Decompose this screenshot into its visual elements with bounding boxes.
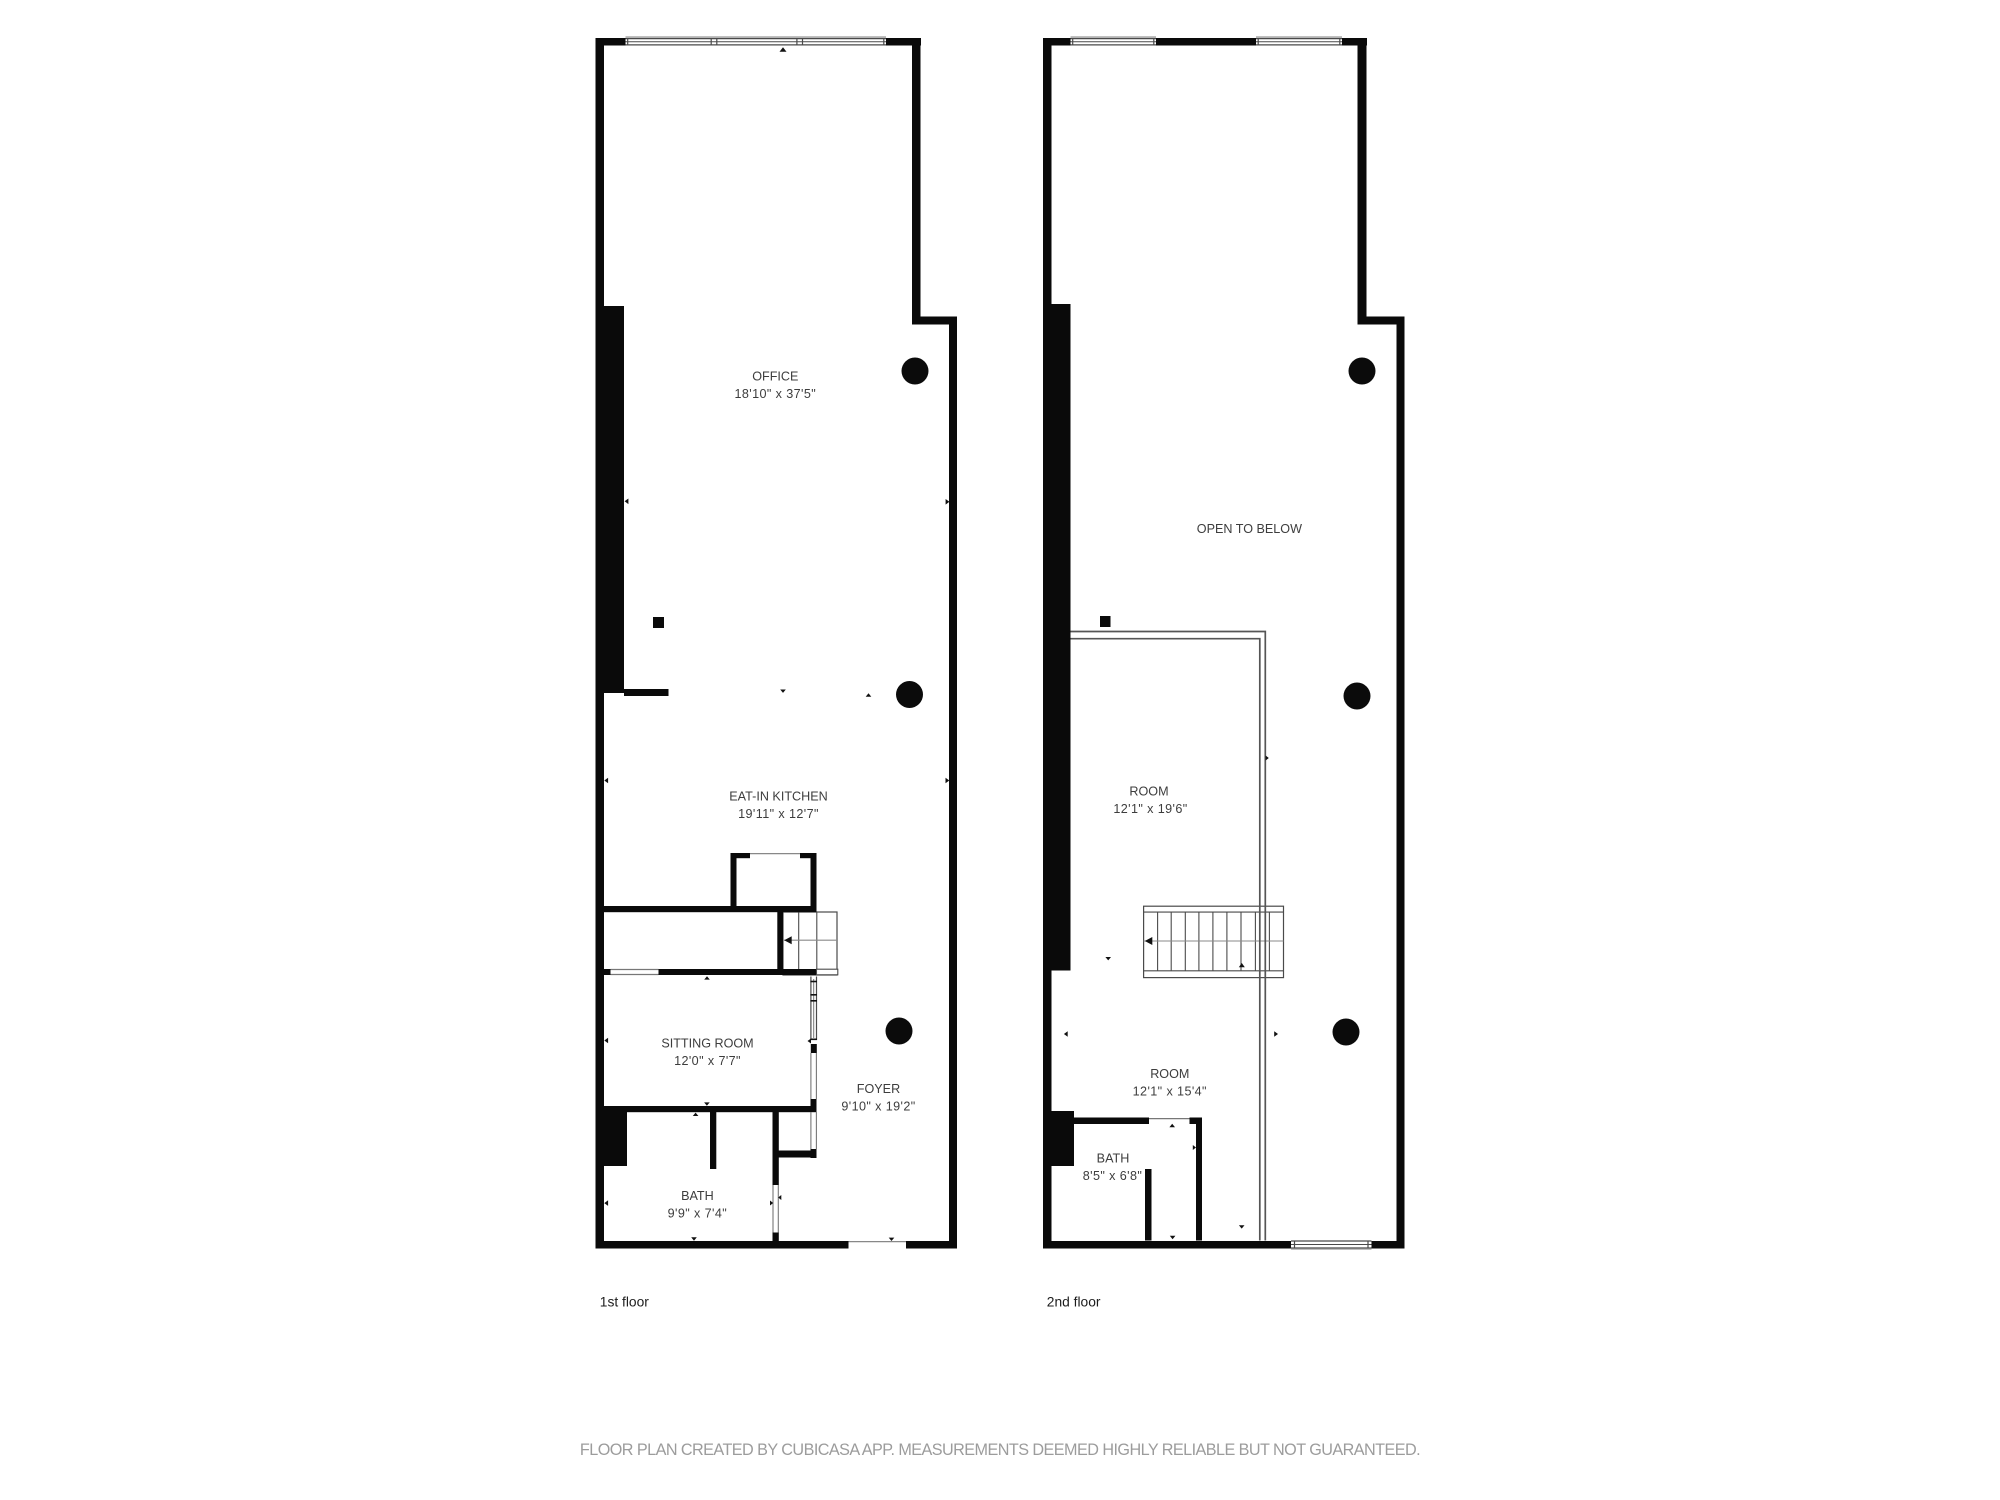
svg-text:FOYER: FOYER [857,1082,900,1096]
svg-text:9'9" x 7'4": 9'9" x 7'4" [668,1207,727,1221]
svg-text:19'11" x 12'7": 19'11" x 12'7" [738,807,819,821]
svg-text:8'5" x 6'8": 8'5" x 6'8" [1083,1169,1142,1183]
svg-text:18'10" x 37'5": 18'10" x 37'5" [734,387,816,401]
svg-text:OPEN TO BELOW: OPEN TO BELOW [1197,522,1302,536]
svg-text:BATH: BATH [681,1189,714,1203]
svg-text:12'0" x 7'7": 12'0" x 7'7" [674,1054,741,1068]
svg-text:FLOOR PLAN CREATED BY CUBICASA: FLOOR PLAN CREATED BY CUBICASA APP. MEAS… [580,1441,1420,1459]
svg-text:ROOM: ROOM [1129,785,1168,799]
svg-text:SITTING ROOM: SITTING ROOM [661,1037,753,1051]
svg-text:2nd floor: 2nd floor [1047,1295,1101,1310]
svg-text:BATH: BATH [1097,1152,1130,1166]
svg-text:OFFICE: OFFICE [752,370,798,384]
svg-text:12'1" x 15'4": 12'1" x 15'4" [1133,1085,1207,1099]
svg-text:9'10" x 19'2": 9'10" x 19'2" [841,1100,915,1114]
svg-text:1st floor: 1st floor [600,1295,649,1310]
svg-text:ROOM: ROOM [1150,1067,1189,1081]
svg-text:12'1" x 19'6": 12'1" x 19'6" [1113,802,1187,816]
svg-text:EAT-IN KITCHEN: EAT-IN KITCHEN [729,790,827,804]
